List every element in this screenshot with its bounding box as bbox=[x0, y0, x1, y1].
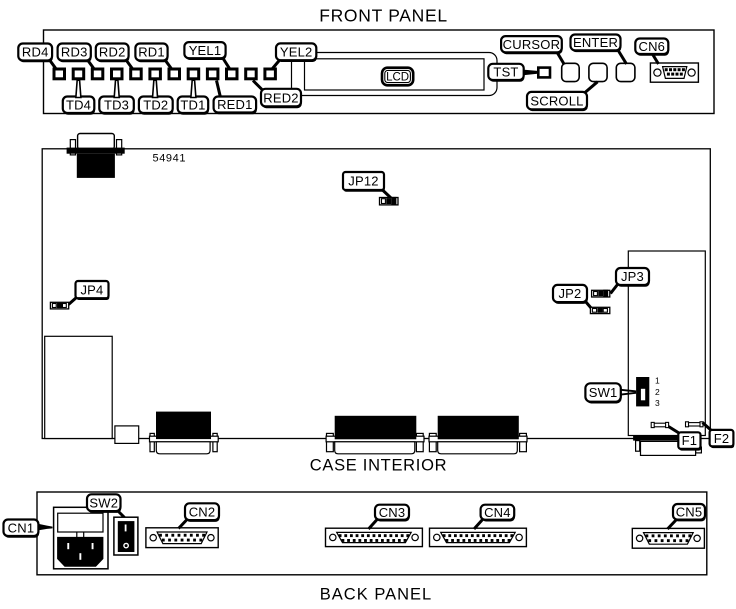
svg-text:TD4: TD4 bbox=[66, 97, 91, 112]
svg-text:RED2: RED2 bbox=[263, 90, 298, 105]
svg-text:JP12: JP12 bbox=[348, 174, 378, 189]
svg-text:JP3: JP3 bbox=[621, 269, 644, 284]
svg-text:YEL2: YEL2 bbox=[280, 44, 313, 59]
svg-text:ENTER: ENTER bbox=[573, 35, 618, 50]
svg-text:SW1: SW1 bbox=[589, 385, 618, 400]
svg-text:CN6: CN6 bbox=[638, 39, 665, 54]
svg-text:TD2: TD2 bbox=[143, 97, 168, 112]
svg-text:JP4: JP4 bbox=[80, 282, 103, 297]
svg-text:RD3: RD3 bbox=[61, 45, 88, 60]
svg-text:FRONT PANEL: FRONT PANEL bbox=[319, 6, 448, 26]
svg-text:RD4: RD4 bbox=[22, 45, 49, 60]
svg-text:1: 1 bbox=[655, 376, 660, 386]
svg-text:LCD: LCD bbox=[386, 72, 409, 84]
svg-text:BACK PANEL: BACK PANEL bbox=[320, 586, 432, 604]
svg-text:RED1: RED1 bbox=[217, 97, 252, 112]
svg-text:3: 3 bbox=[655, 398, 660, 408]
svg-text:F2: F2 bbox=[714, 431, 730, 446]
svg-text:CN1: CN1 bbox=[8, 520, 35, 535]
svg-text:CN5: CN5 bbox=[676, 504, 703, 519]
svg-text:54941: 54941 bbox=[153, 153, 187, 165]
svg-text:TD3: TD3 bbox=[104, 97, 129, 112]
svg-text:TST: TST bbox=[493, 65, 518, 80]
svg-text:CASE INTERIOR: CASE INTERIOR bbox=[310, 457, 447, 475]
svg-text:SW2: SW2 bbox=[89, 495, 118, 510]
svg-text:CN4: CN4 bbox=[484, 505, 511, 520]
svg-text:RD2: RD2 bbox=[99, 45, 126, 60]
svg-text:2: 2 bbox=[655, 387, 660, 397]
svg-text:RD1: RD1 bbox=[138, 45, 165, 60]
svg-text:JP2: JP2 bbox=[558, 286, 581, 301]
svg-text:SCROLL: SCROLL bbox=[530, 93, 583, 108]
svg-text:TD1: TD1 bbox=[180, 97, 205, 112]
svg-text:CN3: CN3 bbox=[379, 505, 406, 520]
svg-text:YEL1: YEL1 bbox=[189, 43, 222, 58]
svg-text:CURSOR: CURSOR bbox=[503, 37, 561, 52]
svg-text:CN2: CN2 bbox=[189, 504, 216, 519]
svg-text:F1: F1 bbox=[682, 433, 698, 448]
